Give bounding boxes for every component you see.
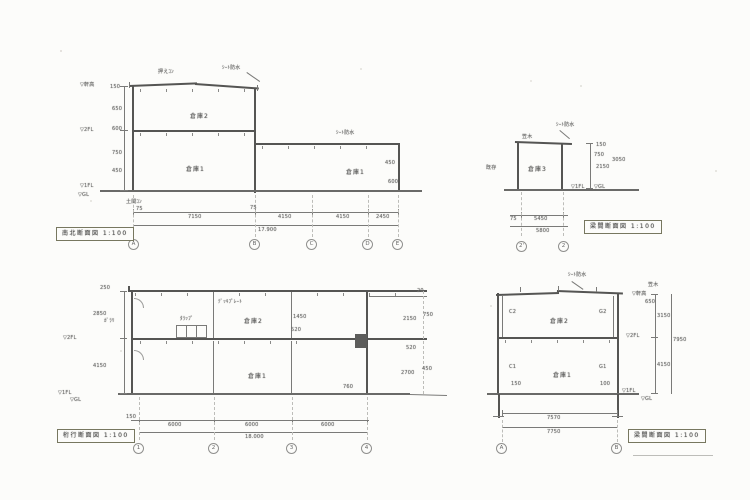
dim-label: 2150 <box>596 164 610 170</box>
dim-total: 7750 <box>547 429 561 435</box>
parapet-note: 笠木 <box>522 134 532 140</box>
column-line <box>213 292 214 339</box>
roof-ticks <box>140 89 250 92</box>
door-swing-arc <box>134 298 144 308</box>
dim-chain-line <box>671 294 672 394</box>
dim-label: 150 <box>511 381 521 387</box>
grid-bubble: A <box>496 443 507 454</box>
roof-note: ｼｰﾄ防水 <box>568 272 587 278</box>
dim-label: 4150 <box>93 363 107 369</box>
floor-ticks <box>140 341 320 344</box>
roof-note: 押えｺﾝ <box>158 69 174 75</box>
dim-line <box>131 420 369 421</box>
level-label: ▽1FL <box>58 390 72 396</box>
column-line <box>213 341 214 394</box>
member-mark: G2 <box>599 309 606 315</box>
roof-line <box>129 82 197 87</box>
dim-total: 7950 <box>673 337 687 343</box>
grid-line <box>214 397 215 440</box>
dim-total: 17.900 <box>258 227 277 233</box>
floor-line <box>131 338 427 340</box>
leader-line <box>559 130 570 139</box>
column-line <box>291 341 292 394</box>
dim-tick <box>120 338 127 339</box>
room-label: 倉庫2 <box>244 318 263 325</box>
grid-bubble: C <box>306 239 317 250</box>
dim-line <box>133 225 399 226</box>
grid-line <box>423 291 424 394</box>
level-label: ▽GL <box>594 184 605 190</box>
eave-tick <box>129 82 130 88</box>
dim-label: 7150 <box>188 214 202 220</box>
dim-label: 650 <box>645 299 655 305</box>
level-label: ▽軒高 <box>632 291 646 297</box>
dim-label: 2850 <box>93 311 107 317</box>
dim-label: 750 <box>423 312 433 318</box>
grid-line <box>563 192 564 236</box>
dim-label: 3150 <box>657 313 671 319</box>
sheet-border-line <box>633 455 713 456</box>
grid-line <box>521 192 522 236</box>
dim-label: 150 <box>596 142 606 148</box>
door-swing-arc <box>134 350 144 360</box>
dim-label: 150 <box>126 414 136 420</box>
annex-roof-line <box>256 143 400 145</box>
ground-line <box>100 190 422 192</box>
deck-note: ﾃﾞｯｷﾌﾟﾚｰﾄ <box>218 299 242 305</box>
floor-line <box>133 130 255 132</box>
grid-line <box>617 420 618 442</box>
roof-note: ｼｰﾄ防水 <box>556 122 575 128</box>
annex-roof-note: ｼｰﾄ防水 <box>336 130 355 136</box>
leader-line <box>571 281 583 290</box>
wall-line <box>517 142 519 190</box>
grid-bubble: 3 <box>286 443 297 454</box>
dim-tick <box>586 188 593 189</box>
dim-label: 600 <box>112 126 122 132</box>
grid-bubble: D <box>362 239 373 250</box>
grid-bubble: 1 <box>133 443 144 454</box>
dim-tick <box>120 190 128 191</box>
dim-line <box>133 212 399 213</box>
slab-note: 土間ｺﾝ <box>126 199 142 205</box>
dim-tick <box>120 393 127 394</box>
dim-label: 4150 <box>657 362 671 368</box>
wall-line <box>497 293 499 395</box>
dim-label: 7570 <box>547 415 561 421</box>
grid-bubble: 2 <box>208 443 219 454</box>
dim-label: 100 <box>600 381 610 387</box>
dim-label: 5450 <box>534 216 548 222</box>
level-label: ▽2FL <box>80 127 94 133</box>
dim-label: 1450 <box>293 314 307 320</box>
dim-tick <box>651 294 658 295</box>
drawing-title: 梁間断面図 1:100 <box>584 220 662 234</box>
grid-bubble: 2' <box>516 241 527 252</box>
room-label: 倉庫3 <box>528 166 547 173</box>
annex-wall-line <box>398 143 400 191</box>
roof-line <box>515 141 572 145</box>
annex-roof-ticks <box>262 146 392 149</box>
roof-note: ｼｰﾄ防水 <box>222 65 241 71</box>
dim-label: 450 <box>112 168 122 174</box>
grid-bubble: B <box>249 239 260 250</box>
vent-note: ｶﾞﾗﾘ <box>104 318 115 324</box>
dim-tick <box>502 410 503 416</box>
dim-label: 2150 <box>403 316 417 322</box>
dim-tick <box>120 86 128 87</box>
roof-line <box>496 292 559 296</box>
dim-label: 75 <box>510 216 517 222</box>
dim-label: 6000 <box>321 422 335 428</box>
bulkhead-line <box>196 325 197 338</box>
drawing-title: 桁行断面図 1:100 <box>57 429 135 443</box>
drawing-title: 梁間断面図 1:100 <box>628 429 706 443</box>
level-label: ▽軒高 <box>80 82 94 88</box>
member-mark: C1 <box>509 364 516 370</box>
foundation-line <box>498 394 500 418</box>
dim-total: 18.000 <box>245 434 264 440</box>
dim-tick <box>120 291 127 292</box>
grid-bubble: 2 <box>558 241 569 252</box>
dim-label: 450 <box>422 366 432 372</box>
beam-joint <box>355 334 367 348</box>
roof-line <box>128 290 427 292</box>
bulkhead-detail <box>176 325 207 338</box>
room-label: 倉庫2 <box>550 318 569 325</box>
wall-inner-line <box>613 296 614 338</box>
roof-line <box>557 290 623 295</box>
parapet-note: 笠木 <box>648 282 658 288</box>
dim-tick <box>651 337 658 338</box>
level-label: ▽GL <box>641 396 652 402</box>
member-mark: C2 <box>509 309 516 315</box>
dim-tick <box>586 143 593 144</box>
room-label: 倉庫1 <box>553 372 572 379</box>
wall-inner-line <box>502 296 503 338</box>
roof-tick <box>558 286 559 291</box>
grid-line <box>502 420 503 442</box>
level-label: ▽2FL <box>626 333 640 339</box>
dim-label: 150 <box>110 84 120 90</box>
floor-line <box>497 337 619 339</box>
grid-line <box>368 195 369 237</box>
grid-line <box>367 397 368 440</box>
room-label: 倉庫1 <box>186 166 205 173</box>
scan-speckles <box>60 50 62 52</box>
roof-tick <box>596 287 597 292</box>
level-label: ▽1FL <box>80 183 94 189</box>
wall-line <box>254 89 256 193</box>
dim-line <box>139 432 367 433</box>
bulkhead-line <box>186 325 187 338</box>
level-label: ▽GL <box>78 192 89 198</box>
dim-label: 520 <box>406 345 416 351</box>
level-label: ▽2FL <box>63 335 77 341</box>
parapet-tick <box>128 286 130 292</box>
dim-line <box>502 413 617 414</box>
leader-line <box>246 72 260 82</box>
side-note: 既存 <box>486 165 496 171</box>
dim-label: 4150 <box>278 214 292 220</box>
level-label: ▽1FL <box>622 388 636 394</box>
room-label: 倉庫1 <box>248 373 267 380</box>
dim-label: 450 <box>385 160 395 166</box>
dim-chain-line <box>655 294 656 394</box>
grid-line <box>255 195 256 237</box>
grid-bubble: E <box>392 239 403 250</box>
dim-label: 750 <box>112 150 122 156</box>
dim-label: 2700 <box>401 370 415 376</box>
grid-line <box>312 195 313 237</box>
dim-chain-line <box>124 291 125 394</box>
dim-label: 2450 <box>376 214 390 220</box>
dim-label: 760 <box>343 384 353 390</box>
dim-tick <box>651 393 658 394</box>
drawing-sheet: 押えｺﾝ ｼｰﾄ防水 ▽軒高 ▽2FL ▽1FL ▽GL 150 650 600… <box>0 0 750 500</box>
wall-line <box>617 293 619 395</box>
wall-line <box>561 144 563 190</box>
eave-tick <box>257 85 258 91</box>
grid-bubble: B <box>611 443 622 454</box>
dim-label: 20 <box>417 288 424 294</box>
member-mark: G1 <box>599 364 606 370</box>
dim-label: 6000 <box>245 422 259 428</box>
ground-slope-line <box>410 394 447 396</box>
dim-total: 3050 <box>612 157 626 163</box>
grid-bubble: 4 <box>361 443 372 454</box>
dim-label: 600 <box>388 179 398 185</box>
ladder-note: ﾀﾗｯﾌﾟ <box>180 316 193 322</box>
dim-label: 75 <box>136 206 143 212</box>
canopy-line <box>369 296 427 297</box>
level-label: ▽1FL <box>571 184 585 190</box>
dim-chain-line <box>590 143 591 188</box>
room-label: 倉庫1 <box>346 169 365 176</box>
footing-tick <box>493 416 504 417</box>
dim-line <box>502 427 617 428</box>
ground-line <box>118 393 410 395</box>
dim-line <box>510 226 568 227</box>
level-label: ▽GL <box>70 397 81 403</box>
wall-line <box>131 290 133 395</box>
grid-line <box>398 195 399 237</box>
dim-label: 250 <box>100 285 110 291</box>
dim-label: 4150 <box>336 214 350 220</box>
floor-ticks <box>140 133 250 136</box>
footing-tick <box>612 416 623 417</box>
drawing-title: 南北断面図 1:100 <box>56 227 134 241</box>
grid-line <box>139 397 140 440</box>
dim-label: 650 <box>112 106 122 112</box>
dim-label: 75 <box>250 205 257 211</box>
dim-label: 6000 <box>168 422 182 428</box>
dim-total: 5800 <box>536 228 550 234</box>
dim-label: 520 <box>291 327 301 333</box>
grid-line <box>292 397 293 440</box>
room-label: 倉庫2 <box>190 113 209 120</box>
roof-tick <box>520 287 521 292</box>
dim-chain-line <box>124 86 125 190</box>
wall-line <box>132 86 134 192</box>
dim-tick <box>617 410 618 416</box>
dim-label: 750 <box>594 152 604 158</box>
floor-ticks <box>505 340 611 343</box>
